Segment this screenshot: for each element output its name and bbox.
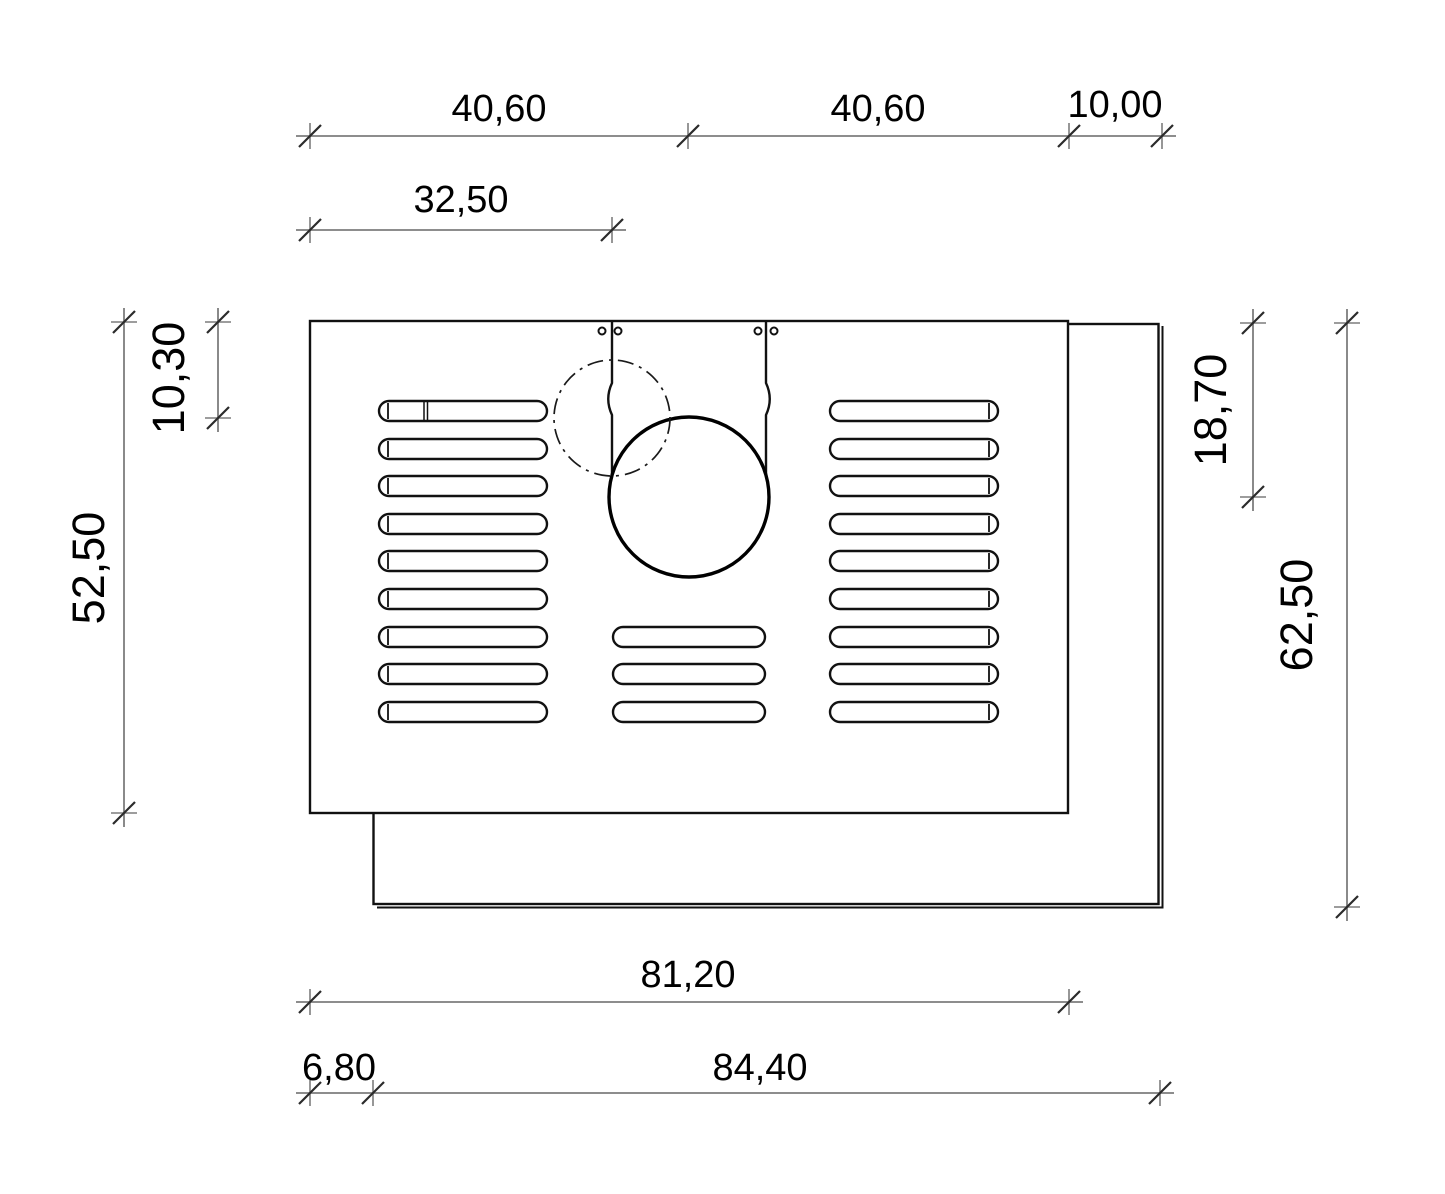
vent-slot (379, 401, 547, 421)
dim-rear-width-chain: 6,80 84,40 (296, 1047, 1174, 1106)
vent-slot (830, 401, 998, 421)
vent-slot (830, 589, 998, 609)
mounting-hole (771, 328, 778, 335)
vent-slot (830, 439, 998, 459)
vent-slot (613, 664, 765, 684)
vent-slot (379, 514, 547, 534)
vent-slot (379, 476, 547, 496)
technical-drawing: 40,60 40,60 10,00 32,50 52,50 10,30 18,7… (0, 0, 1445, 1194)
dim-label-top-left: 40,60 (451, 88, 546, 130)
vent-slots-right (830, 401, 998, 722)
vent-slot (379, 551, 547, 571)
vent-slot (830, 476, 998, 496)
vent-slot (830, 702, 998, 722)
dim-label-flue-offset: 18,70 (1185, 354, 1236, 467)
vent-slot (379, 702, 547, 722)
dim-flue-offset: 18,70 (1185, 309, 1266, 511)
vent-slot (613, 702, 765, 722)
dim-slit-offset: 32,50 (296, 179, 626, 243)
drawing-canvas: 40,60 40,60 10,00 32,50 52,50 10,30 18,7… (0, 0, 1445, 1194)
mounting-hole (599, 328, 606, 335)
dim-label-front-width: 81,20 (640, 954, 735, 996)
vent-slot (379, 589, 547, 609)
dim-centerline-offset: 10,30 (143, 308, 231, 434)
flue-opening-circle (609, 417, 769, 577)
mounting-hole (755, 328, 762, 335)
dim-label-rear-inset: 6,80 (302, 1047, 376, 1089)
vent-slot (379, 627, 547, 647)
vent-slot (379, 664, 547, 684)
vent-slots-center (613, 627, 765, 722)
dim-label-slit-offset: 32,50 (413, 179, 508, 221)
dim-label-centerline-offset: 10,30 (143, 322, 194, 435)
vent-slot (830, 551, 998, 571)
vent-slot (830, 514, 998, 534)
dim-rear-height: 62,50 (1271, 309, 1360, 921)
vent-slot (830, 664, 998, 684)
dim-label-rear-height: 62,50 (1271, 559, 1322, 672)
vent-slot (379, 439, 547, 459)
dim-top-chain: 40,60 40,60 10,00 (296, 84, 1176, 149)
dim-front-width: 81,20 (296, 954, 1083, 1015)
dim-label-rear-width: 84,40 (712, 1047, 807, 1089)
dim-label-top-overhang: 10,00 (1067, 84, 1162, 126)
dim-label-top-right: 40,60 (830, 88, 925, 130)
dim-front-height: 52,50 (63, 308, 137, 827)
vent-slots-left (379, 401, 547, 722)
dim-label-front-height: 52,50 (63, 512, 114, 625)
vent-slot (613, 627, 765, 647)
vent-slot (830, 627, 998, 647)
mounting-hole (615, 328, 622, 335)
